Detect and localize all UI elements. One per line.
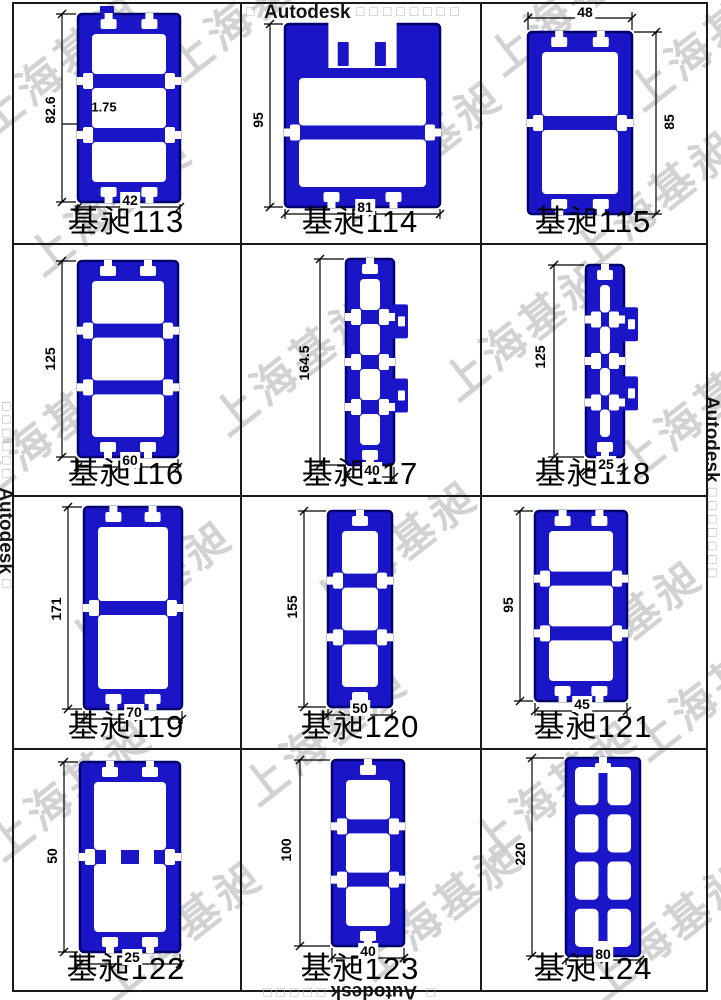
stamp-boxes: □□□□□ bbox=[258, 985, 325, 1000]
height-dim-label: 50 bbox=[44, 848, 60, 864]
height-dim-label: 220 bbox=[512, 842, 528, 865]
width-dim-label: 70 bbox=[124, 704, 144, 720]
height-dim-label: 95 bbox=[500, 597, 516, 613]
stamp-boxes: □□□□□□ bbox=[0, 402, 15, 483]
drawing-cell-121: 基昶121 9545 bbox=[480, 497, 706, 748]
drawing-cell-124: 基昶124 22080 bbox=[480, 750, 706, 990]
width-dim-label: 25 bbox=[596, 456, 616, 472]
width-dim-label: 50 bbox=[350, 700, 370, 716]
height-dim-label: 100 bbox=[278, 838, 294, 861]
width-dim-label: 60 bbox=[120, 452, 140, 468]
autodesk-logo-text: Autodesk bbox=[331, 981, 418, 1000]
width-dim-label: 40 bbox=[358, 943, 378, 959]
drawing-cell-117: 基昶117 164.540 bbox=[240, 245, 480, 495]
autodesk-logo-text: Autodesk bbox=[0, 487, 16, 574]
drawing-cell-113: 基昶113 82.6421.75 bbox=[12, 4, 240, 243]
stamp-boxes: □ bbox=[0, 579, 15, 592]
width-dim-label: 81 bbox=[355, 199, 375, 215]
height-dim-label: 155 bbox=[284, 595, 300, 618]
height-dim-label: 125 bbox=[532, 345, 548, 368]
autodesk-stamp-left: □□□□□□ Autodesk □ bbox=[0, 402, 16, 593]
autodesk-logo-text: Autodesk bbox=[701, 396, 721, 483]
autodesk-stamp-top: □ Autodesk □□□□□□□□ bbox=[246, 2, 464, 24]
height-dim-label: 82.6 bbox=[42, 96, 58, 123]
height-dim-label: 171 bbox=[48, 597, 64, 620]
height-dim-label: 95 bbox=[250, 112, 266, 128]
drawing-cell-116: 基昶116 12560 bbox=[12, 245, 240, 495]
width-dim-label: 42 bbox=[120, 192, 140, 208]
autodesk-stamp-bottom: □ Autodesk □□□□□ bbox=[258, 980, 435, 1000]
width-dim-label: 48 bbox=[575, 4, 595, 20]
stamp-boxes: □ bbox=[422, 985, 435, 1000]
wall-thickness-dim-label: 1.75 bbox=[91, 100, 116, 115]
width-dim-label: 25 bbox=[122, 949, 142, 965]
catalog-sheet: 上海基昶上海基昶上海基昶上海基昶上海基昶上海基昶上海基昶上海基昶上海基昶上海基昶… bbox=[0, 0, 721, 1000]
drawing-cell-114: 基昶114 9581 bbox=[240, 4, 480, 243]
height-dim-label: 85 bbox=[661, 114, 677, 130]
profile-caption-115: 基昶115 bbox=[480, 196, 706, 241]
height-dim-label: 125 bbox=[42, 347, 58, 370]
width-dim-label: 80 bbox=[593, 946, 613, 962]
width-dim-label: 45 bbox=[572, 696, 592, 712]
drawing-cell-119: 基昶119 17170 bbox=[12, 497, 240, 748]
height-dim-label: 164.5 bbox=[296, 345, 312, 380]
drawing-cell-123: 基昶123 10040 bbox=[240, 750, 480, 990]
drawing-cell-118: 基昶118 12525 bbox=[480, 245, 706, 495]
profile-caption-117: 基昶117 bbox=[240, 448, 480, 493]
stamp-boxes: □ bbox=[705, 378, 721, 391]
autodesk-logo-text: Autodesk bbox=[264, 2, 351, 23]
drawing-cell-120: 基昶120 15550 bbox=[240, 497, 480, 748]
stamp-boxes: □□□□□□□ bbox=[705, 488, 721, 582]
profile-caption-118: 基昶118 bbox=[480, 448, 706, 493]
stamp-boxes: □ bbox=[246, 3, 259, 19]
drawing-cell-122: 基昶122 5025 bbox=[12, 750, 240, 990]
width-dim-label: 40 bbox=[362, 462, 382, 478]
profile-caption-121: 基昶121 bbox=[480, 701, 706, 746]
autodesk-stamp-right: □ Autodesk □□□□□□□ bbox=[700, 378, 721, 582]
stamp-boxes: □□□□□□□□ bbox=[356, 3, 464, 19]
drawing-cell-115: 基昶115 8548 bbox=[480, 4, 706, 243]
